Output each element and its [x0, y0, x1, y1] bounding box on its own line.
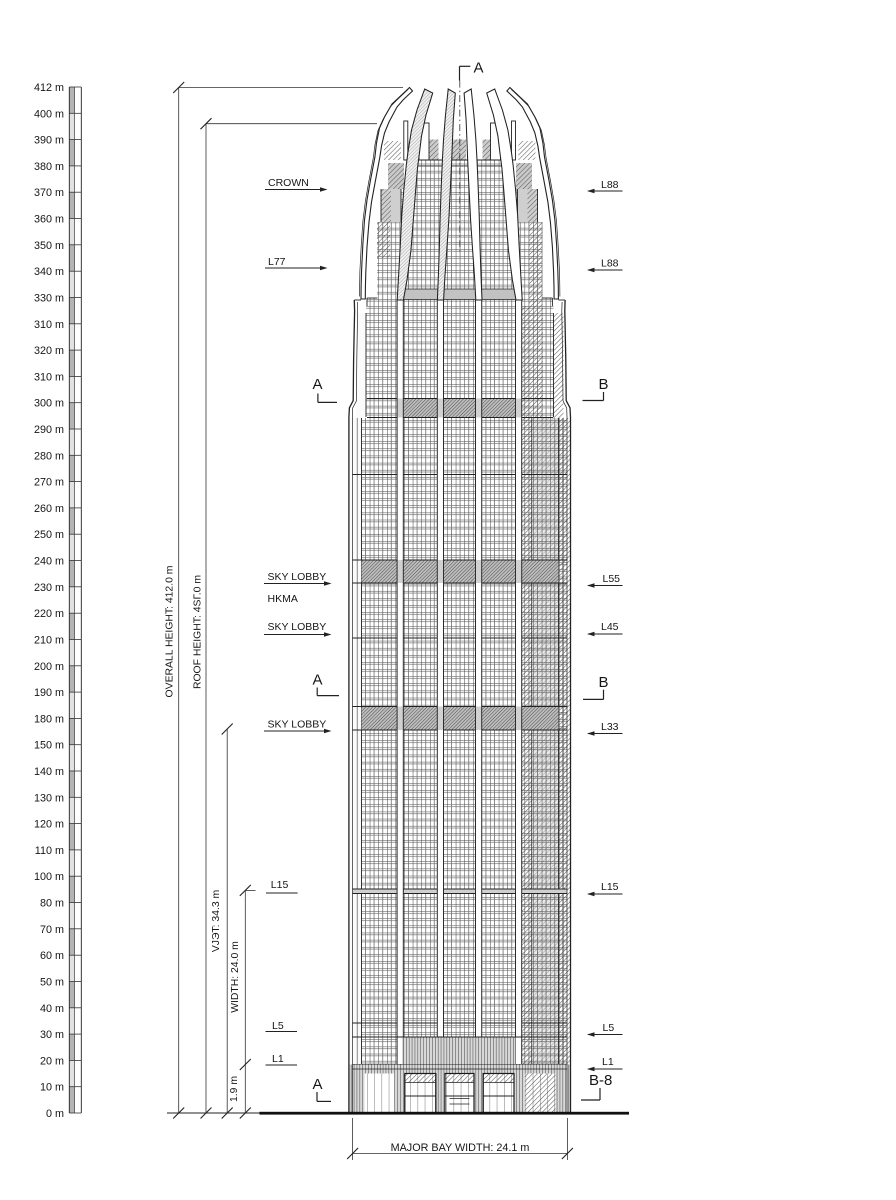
- svg-text:B-8: B-8: [589, 1072, 612, 1089]
- svg-text:L1: L1: [602, 1056, 614, 1068]
- svg-text:280 m: 280 m: [34, 450, 64, 462]
- svg-text:WIDTH: 24.0 m: WIDTH: 24.0 m: [230, 941, 241, 1013]
- svg-text:210 m: 210 m: [34, 635, 64, 647]
- svg-text:0 m: 0 m: [46, 1108, 64, 1120]
- svg-text:200 m: 200 m: [34, 661, 64, 673]
- svg-text:HKMA: HKMA: [268, 593, 298, 605]
- svg-text:360 m: 360 m: [34, 214, 64, 226]
- svg-text:240 m: 240 m: [34, 556, 64, 568]
- svg-text:SKY LOBBY: SKY LOBBY: [268, 571, 327, 583]
- svg-text:SKY LOBBY: SKY LOBBY: [268, 719, 327, 731]
- svg-text:310 m: 310 m: [34, 371, 64, 383]
- svg-text:100 m: 100 m: [34, 871, 64, 883]
- svg-text:270 m: 270 m: [34, 477, 64, 489]
- svg-text:50 m: 50 m: [40, 977, 64, 989]
- svg-text:180 m: 180 m: [34, 713, 64, 725]
- svg-text:A: A: [313, 672, 323, 689]
- svg-text:40 m: 40 m: [40, 1003, 64, 1015]
- svg-text:L15: L15: [601, 881, 619, 893]
- svg-text:SKY LOBBY: SKY LOBBY: [268, 621, 327, 633]
- svg-text:L33: L33: [601, 721, 619, 733]
- svg-text:140 m: 140 m: [34, 766, 64, 778]
- svg-text:120 m: 120 m: [34, 819, 64, 831]
- svg-text:230 m: 230 m: [34, 582, 64, 594]
- svg-text:250 m: 250 m: [34, 529, 64, 541]
- svg-text:340 m: 340 m: [34, 266, 64, 278]
- svg-text:330 m: 330 m: [34, 293, 64, 305]
- svg-text:80 m: 80 m: [40, 898, 64, 910]
- svg-text:L5: L5: [603, 1022, 615, 1034]
- svg-text:150 m: 150 m: [34, 740, 64, 752]
- svg-text:300 m: 300 m: [34, 398, 64, 410]
- svg-text:30 m: 30 m: [40, 1029, 64, 1041]
- svg-text:L88: L88: [601, 258, 619, 270]
- svg-text:412 m: 412 m: [34, 82, 64, 94]
- svg-text:130 m: 130 m: [34, 792, 64, 804]
- svg-text:60 m: 60 m: [40, 950, 64, 962]
- svg-text:CROWN: CROWN: [268, 177, 309, 189]
- svg-text:320 m: 320 m: [34, 345, 64, 357]
- svg-text:190 m: 190 m: [34, 687, 64, 699]
- svg-text:390 m: 390 m: [34, 135, 64, 147]
- svg-text:A: A: [313, 376, 323, 393]
- svg-text:ROOF HEIGHT: 4SГ.0 m: ROOF HEIGHT: 4SГ.0 m: [193, 575, 204, 689]
- svg-text:370 m: 370 m: [34, 187, 64, 199]
- svg-text:260 m: 260 m: [34, 503, 64, 515]
- svg-text:380 m: 380 m: [34, 161, 64, 173]
- svg-text:110 m: 110 m: [35, 845, 64, 857]
- svg-text:10 m: 10 m: [40, 1082, 64, 1094]
- svg-text:A: A: [313, 1076, 323, 1093]
- svg-text:350 m: 350 m: [34, 240, 64, 252]
- svg-text:A: A: [474, 60, 484, 77]
- svg-text:L1: L1: [272, 1053, 284, 1065]
- svg-text:OVERALL HEIGHT: 412.0 m: OVERALL HEIGHT: 412.0 m: [164, 566, 175, 698]
- svg-text:220 m: 220 m: [34, 608, 64, 620]
- svg-text:400 m: 400 m: [34, 108, 64, 120]
- svg-text:L88: L88: [601, 179, 619, 191]
- svg-text:B: B: [599, 674, 609, 691]
- svg-text:L55: L55: [603, 573, 621, 585]
- svg-text:70 m: 70 m: [40, 924, 64, 936]
- svg-text:B: B: [599, 376, 609, 393]
- svg-text:20 m: 20 m: [40, 1055, 64, 1067]
- svg-text:VJЭT: 34.3 m: VJЭT: 34.3 m: [211, 890, 222, 952]
- svg-text:L15: L15: [271, 879, 289, 891]
- svg-text:L5: L5: [272, 1020, 284, 1032]
- svg-text:1.9 m: 1.9 m: [229, 1076, 240, 1102]
- svg-text:L77: L77: [268, 256, 286, 268]
- svg-text:MAJOR BAY WIDTH: 24.1 m: MAJOR BAY WIDTH: 24.1 m: [391, 1142, 530, 1154]
- svg-text:L45: L45: [601, 621, 619, 633]
- svg-text:290 m: 290 m: [34, 424, 64, 436]
- svg-text:310 m: 310 m: [34, 319, 64, 331]
